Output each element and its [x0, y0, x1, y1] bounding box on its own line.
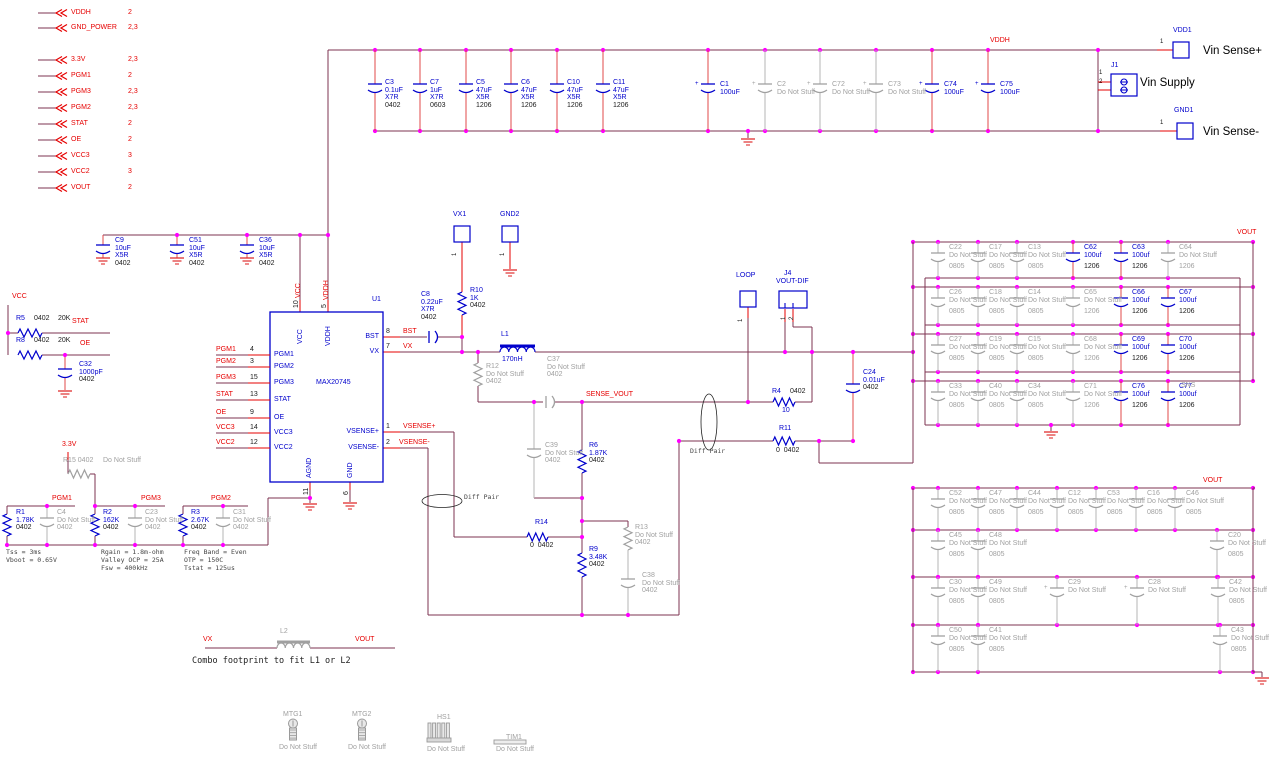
- refdes-C67: C67: [1179, 289, 1192, 297]
- refdes-C65: C65: [1084, 289, 1097, 297]
- size-C14: 0805: [1028, 308, 1044, 316]
- refdes-TIM1: TIM1: [506, 734, 522, 742]
- value-C5: 1206: [476, 102, 492, 110]
- refdes-LOOP: LOOP: [736, 272, 755, 280]
- part-label: 0402: [233, 524, 249, 532]
- refdes-C14: C14: [1028, 289, 1041, 297]
- value-C6: 1206: [521, 102, 537, 110]
- value-C22: Do Not Stuff: [949, 252, 987, 260]
- size-C41: 0805: [989, 646, 1005, 654]
- refdes-J1: J1: [1111, 62, 1118, 70]
- size-C33: 0805: [949, 402, 965, 410]
- value-C7: 1uF: [430, 87, 442, 95]
- value-C29: Do Not Stuff: [1068, 587, 1106, 595]
- net-label-PGM1: PGM1: [52, 495, 72, 503]
- schematic-page: ++++++++ VDDH2GND_POWER2,33.3V2,3PGM12PG…: [0, 0, 1283, 764]
- refdes-C12: C12: [1068, 490, 1081, 498]
- value-L1: 170nH: [502, 356, 523, 364]
- value-C10: 1206: [567, 102, 583, 110]
- part-label: 162K: [103, 517, 119, 525]
- value-C77: 100uf: [1179, 391, 1197, 399]
- part-label: 0402: [589, 457, 605, 465]
- refdes-C47: C47: [989, 490, 1002, 498]
- pin-number: 1: [1160, 39, 1163, 47]
- refdes-C49: C49: [989, 579, 1002, 587]
- size-C17: 0805: [989, 263, 1005, 271]
- pin-number: 5: [321, 304, 329, 308]
- value-C16: Do Not Stuff: [1147, 498, 1185, 506]
- value-C47: Do Not Stuff: [989, 498, 1027, 506]
- value-C40: Do Not Stuff: [989, 391, 1027, 399]
- part-label: 2.67K: [191, 517, 209, 525]
- size-C71: 1206: [1084, 402, 1100, 410]
- refdes-R15: R15 0402: [63, 457, 93, 465]
- pin-number: 1: [452, 253, 460, 256]
- refdes-C29: C29: [1068, 579, 1081, 587]
- size-C65: 1206: [1084, 308, 1100, 316]
- part-label: C39: [545, 442, 558, 450]
- net-flag-pages: 2,3: [128, 24, 138, 32]
- value-C6: X5R: [521, 94, 535, 102]
- part-label: 0402: [79, 376, 95, 384]
- refdes-C9: C9: [115, 237, 124, 245]
- pin-number: 10: [293, 300, 301, 308]
- net-flag-VOUT: VOUT: [71, 184, 90, 192]
- size-C18: 0805: [989, 308, 1005, 316]
- part-number-MAX20745: MAX20745: [316, 379, 351, 387]
- value-C9: X5R: [115, 252, 129, 260]
- size-R8: 0402: [34, 337, 50, 345]
- net-flag-pages: 2: [128, 72, 132, 80]
- value-C1: 100uF: [720, 89, 740, 97]
- refdes-J4: J4: [784, 270, 791, 278]
- refdes-C70: C70: [1179, 336, 1192, 344]
- part-label: R2: [103, 509, 112, 517]
- value-C7: X7R: [430, 94, 444, 102]
- value-C45: Do Not Stuff: [949, 540, 987, 548]
- value-C44: Do Not Stuff: [1028, 498, 1066, 506]
- value-C67: 100uf: [1179, 297, 1197, 305]
- note-text: Vboot = 0.65V: [6, 557, 57, 565]
- part-label: R10: [470, 287, 483, 295]
- net-label-VCC: VCC: [12, 293, 27, 301]
- part-label: 0402: [486, 378, 502, 386]
- refdes-C69: C69: [1132, 336, 1145, 344]
- value-C46: Do Not Stuff: [1186, 498, 1224, 506]
- annotation-combo-footprint: Combo footprint to fit L1 or L2: [192, 658, 351, 666]
- refdes-C53: C53: [1107, 490, 1120, 498]
- value-C49: Do Not Stuff: [989, 587, 1027, 595]
- refdes-C62: C62: [1084, 244, 1097, 252]
- size-C62: 1206: [1084, 263, 1100, 271]
- value-C36: 10uF: [259, 245, 275, 253]
- part-label: Do Not Stuff: [233, 517, 271, 525]
- net-flag-pages: 3: [128, 152, 132, 160]
- note-MTG2: Do Not Stuff: [348, 744, 386, 752]
- net-label-PGM2: PGM2: [216, 358, 236, 366]
- pin-name-OE: OE: [274, 414, 284, 422]
- net-label-VSENSE-: VSENSE-: [399, 439, 430, 447]
- refdes-C34: C34: [1028, 383, 1041, 391]
- part-label: 0402: [16, 524, 32, 532]
- value-C42: Do Not Stuff: [1229, 587, 1267, 595]
- pin-number: 8: [386, 328, 390, 336]
- pin-name-AGND: AGND: [306, 458, 314, 478]
- value-R4: 10: [782, 407, 790, 415]
- value-C51: X5R: [189, 252, 203, 260]
- schematic-labels: VDDH2GND_POWER2,33.3V2,3PGM12PGM32,3PGM2…: [0, 0, 1283, 764]
- part-label: C24: [863, 369, 876, 377]
- net-flag-pages: 2,3: [128, 104, 138, 112]
- value-C11: X5R: [613, 94, 627, 102]
- refdes-C75: C75: [1000, 81, 1013, 89]
- refdes-GND2: GND2: [500, 211, 519, 219]
- value-C74: 100uF: [944, 89, 964, 97]
- pin-name-VCC: VCC: [297, 329, 305, 344]
- net-label-VOUT: VOUT: [355, 636, 374, 644]
- refdes-C36: C36: [259, 237, 272, 245]
- pin-number: 1: [386, 423, 390, 431]
- part-label: R1: [16, 509, 25, 517]
- refdes-U1: U1: [372, 296, 381, 304]
- refdes-C2: C2: [777, 81, 786, 89]
- refdes-C7: C7: [430, 79, 439, 87]
- net-label-VCC2: VCC2: [216, 439, 235, 447]
- refdes-C64: C64: [1179, 244, 1192, 252]
- refdes-C17: C17: [989, 244, 1002, 252]
- value-C64: Do Not Stuff: [1179, 252, 1217, 260]
- value-C15: Do Not Stuff: [1028, 344, 1066, 352]
- value-C5: X5R: [476, 94, 490, 102]
- size-C44: 0805: [1028, 509, 1044, 517]
- net-flag-pages: 2: [128, 184, 132, 192]
- size-C77: 1206: [1179, 402, 1195, 410]
- net-flag-VCC3: VCC3: [71, 152, 90, 160]
- part-label: 0.01uF: [863, 377, 885, 385]
- part-label: Do Not Stuff: [545, 450, 583, 458]
- net-label-SNS: SNS: [1181, 382, 1195, 390]
- net-label-VX: VX: [203, 636, 212, 644]
- net-label-PGM1: PGM1: [216, 346, 236, 354]
- pin-name-VSENSE+: VSENSE+: [337, 428, 379, 436]
- pin-name-VX: VX: [337, 348, 379, 356]
- label-vin-supply: Vin Supply: [1140, 80, 1195, 88]
- part-label: 0402: [589, 561, 605, 569]
- refdes-C44: C44: [1028, 490, 1041, 498]
- part-label: 1K: [470, 295, 479, 303]
- value-C17: Do Not Stuff: [989, 252, 1027, 260]
- size-C53: 0805: [1107, 509, 1123, 517]
- part-label: C23: [145, 509, 158, 517]
- value-C51: 0402: [189, 260, 205, 268]
- part-label: R6: [589, 442, 598, 450]
- value-C65: Do Not Stuff: [1084, 297, 1122, 305]
- part-label: 0402: [421, 314, 437, 322]
- refdes-L2: L2: [280, 628, 288, 636]
- refdes-C13: C13: [1028, 244, 1041, 252]
- size-C15: 0805: [1028, 355, 1044, 363]
- pin-name-VCC3: VCC3: [274, 429, 293, 437]
- value-R5: 20K: [58, 315, 70, 323]
- value-C43: Do Not Stuff: [1231, 635, 1269, 643]
- note-R15: Do Not Stuff: [103, 457, 141, 465]
- pin-number: 11: [303, 488, 311, 495]
- net-flag-pages: 2,3: [128, 88, 138, 96]
- refdes-C43: C43: [1231, 627, 1244, 635]
- value-C36: 0402: [259, 260, 275, 268]
- refdes-MTG2: MTG2: [352, 711, 371, 719]
- label-vin-sense-minus: Vin Sense-: [1203, 129, 1259, 137]
- value-C68: Do Not Stuff: [1084, 344, 1122, 352]
- value-C3: X7R: [385, 94, 399, 102]
- pin-name-VDDH: VDDH: [325, 326, 333, 346]
- pin-number: 1: [781, 317, 789, 320]
- net-label-VDDH: VDDH: [990, 37, 1010, 45]
- net-label-PGM3: PGM3: [141, 495, 161, 503]
- pin-number: 14: [250, 424, 258, 432]
- refdes-C19: C19: [989, 336, 1002, 344]
- size-C64: 1206: [1179, 263, 1195, 271]
- part-label: C4: [57, 509, 66, 517]
- value-C6: 47uF: [521, 87, 537, 95]
- pin-number: 9: [250, 409, 254, 417]
- refdes-C66: C66: [1132, 289, 1145, 297]
- pin-number: 2: [1099, 79, 1102, 87]
- value-C20: Do Not Stuff: [1228, 540, 1266, 548]
- refdes-C1: C1: [720, 81, 729, 89]
- refdes-C15: C15: [1028, 336, 1041, 344]
- value-C11: 47uF: [613, 87, 629, 95]
- part-label: 0402: [470, 302, 486, 310]
- value-C9: 10uF: [115, 245, 131, 253]
- refdes-GND1: GND1: [1174, 107, 1193, 115]
- annotation-diff-pair: Diff Pair: [690, 448, 725, 456]
- refdes-C45: C45: [949, 532, 962, 540]
- size-C27: 0805: [949, 355, 965, 363]
- refdes-C46: C46: [1186, 490, 1199, 498]
- net-label-PGM3: PGM3: [216, 374, 236, 382]
- size-C42: 0805: [1229, 598, 1245, 606]
- size-C20: 0805: [1228, 551, 1244, 559]
- part-label: R12: [486, 363, 499, 371]
- net-flag-pages: 2: [128, 120, 132, 128]
- size-C63: 1206: [1132, 263, 1148, 271]
- net-label-STAT: STAT: [216, 391, 233, 399]
- value-C71: Do Not Stuff: [1084, 391, 1122, 399]
- refdes-C26: C26: [949, 289, 962, 297]
- value-C41: Do Not Stuff: [989, 635, 1027, 643]
- refdes-C27: C27: [949, 336, 962, 344]
- part-label: X7R: [421, 306, 435, 314]
- refdes-C50: C50: [949, 627, 962, 635]
- net-flag-PGM2: PGM2: [71, 104, 91, 112]
- size-C22: 0805: [949, 263, 965, 271]
- refdes-C68: C68: [1084, 336, 1097, 344]
- size-C30: 0805: [949, 598, 965, 606]
- part-label: 1.87K: [589, 450, 607, 458]
- value-C72: Do Not Stuff: [832, 89, 870, 97]
- value-C70: 100uf: [1179, 344, 1197, 352]
- value-C62: 100uf: [1084, 252, 1102, 260]
- value-C3: 0402: [385, 102, 401, 110]
- net-flag-PGM1: PGM1: [71, 72, 91, 80]
- value-C50: Do Not Stuff: [949, 635, 987, 643]
- note-text: Fsw = 400kHz: [101, 565, 148, 573]
- refdes-C30: C30: [949, 579, 962, 587]
- net-flag-STAT: STAT: [71, 120, 88, 128]
- size-C47: 0805: [989, 509, 1005, 517]
- pin-name-GND: GND: [347, 462, 355, 478]
- refdes-R11: R11: [779, 425, 791, 433]
- size-C13: 0805: [1028, 263, 1044, 271]
- value-C19: Do Not Stuff: [989, 344, 1027, 352]
- refdes-C20: C20: [1228, 532, 1241, 540]
- label-vin-sense-plus: Vin Sense+: [1203, 48, 1262, 56]
- size-C52: 0805: [949, 509, 965, 517]
- refdes-R14: R14: [535, 519, 548, 527]
- part-label: C37: [547, 356, 560, 364]
- net-flag-pages: 2: [128, 9, 132, 17]
- part-label: 0402: [145, 524, 161, 532]
- net-flag-PGM3: PGM3: [71, 88, 91, 96]
- net-label-VCC: VCC: [295, 283, 303, 298]
- size-C40: 0805: [989, 402, 1005, 410]
- part-label: 0402: [545, 457, 561, 465]
- value-C73: Do Not Stuff: [888, 89, 926, 97]
- value-C66: 100uf: [1132, 297, 1150, 305]
- value-C10: X5R: [567, 94, 581, 102]
- size-C48: 0805: [989, 551, 1005, 559]
- refdes-C6: C6: [521, 79, 530, 87]
- value-C5: 47uF: [476, 87, 492, 95]
- size-C19: 0805: [989, 355, 1005, 363]
- pin-name-VSENSE-: VSENSE-: [337, 444, 379, 452]
- net-flag-pages: 2,3: [128, 56, 138, 64]
- pin-number: 7: [386, 343, 390, 351]
- refdes-R4: R4: [772, 388, 781, 396]
- part-label: Do Not Stuff: [57, 517, 95, 525]
- part-label: 1000pF: [79, 369, 103, 377]
- refdes-C5: C5: [476, 79, 485, 87]
- refdes-L1: L1: [501, 331, 509, 339]
- refdes-C22: C22: [949, 244, 962, 252]
- net-flag-VDDH: VDDH: [71, 9, 91, 17]
- part-label: 0402: [191, 524, 207, 532]
- value-C14: Do Not Stuff: [1028, 297, 1066, 305]
- part-label: 1.78K: [16, 517, 34, 525]
- pin-number: 12: [250, 439, 258, 447]
- size-C34: 0805: [1028, 402, 1044, 410]
- value-C10: 47uF: [567, 87, 583, 95]
- refdes-C51: C51: [189, 237, 202, 245]
- part-label: Do Not Stuff: [486, 371, 524, 379]
- value-C27: Do Not Stuff: [949, 344, 987, 352]
- size-C70: 1206: [1179, 355, 1195, 363]
- size-C49: 0805: [989, 598, 1005, 606]
- pin-name-BST: BST: [337, 333, 379, 341]
- part-label: R3: [191, 509, 200, 517]
- value-C53: Do Not Stuff: [1107, 498, 1145, 506]
- size-C46: 0805: [1186, 509, 1202, 517]
- refdes-C63: C63: [1132, 244, 1145, 252]
- value-R14: 0 0402: [530, 542, 553, 550]
- value-C63: 100uf: [1132, 252, 1150, 260]
- size-C43: 0805: [1231, 646, 1247, 654]
- part-label: Do Not Stuff: [635, 532, 673, 540]
- pin-name-STAT: STAT: [274, 396, 291, 404]
- pin-number: 13: [250, 391, 258, 399]
- value-C13: Do Not Stuff: [1028, 252, 1066, 260]
- note-HS1: Do Not Stuff: [427, 746, 465, 754]
- pin-number: 6: [343, 491, 351, 495]
- value-R11: 0 0402: [776, 447, 799, 455]
- value-C7: 0603: [430, 102, 446, 110]
- note-TIM1: Do Not Stuff: [496, 746, 534, 754]
- value-C26: Do Not Stuff: [949, 297, 987, 305]
- pin-name-PGM2: PGM2: [274, 363, 294, 371]
- pin-number: 3: [250, 358, 254, 366]
- size-C76: 1206: [1132, 402, 1148, 410]
- part-label: 0402: [547, 371, 563, 379]
- size-C26: 0805: [949, 308, 965, 316]
- note-text: Tstat = 125us: [184, 565, 235, 573]
- net-label-VCC3: VCC3: [216, 424, 235, 432]
- net-label-STAT: STAT: [72, 318, 89, 326]
- net-label-VX: VX: [403, 343, 412, 351]
- value-C2: Do Not Stuff: [777, 89, 815, 97]
- pin-name-PGM3: PGM3: [274, 379, 294, 387]
- size-C12: 0805: [1068, 509, 1084, 517]
- refdes-VX1: VX1: [453, 211, 466, 219]
- refdes-C16: C16: [1147, 490, 1160, 498]
- part-label: R9: [589, 546, 598, 554]
- refdes-C71: C71: [1084, 383, 1097, 391]
- net-label-VOUT: VOUT: [1203, 477, 1222, 485]
- part-label: C31: [233, 509, 246, 517]
- refdes-VDD1: VDD1: [1173, 27, 1192, 35]
- refdes-C52: C52: [949, 490, 962, 498]
- size-C68: 1206: [1084, 355, 1100, 363]
- note-MTG1: Do Not Stuff: [279, 744, 317, 752]
- net-label-BST: BST: [403, 328, 417, 336]
- part-label: R13: [635, 524, 648, 532]
- refdes-C74: C74: [944, 81, 957, 89]
- refdes-C11: C11: [613, 79, 625, 87]
- size-C66: 1206: [1132, 308, 1148, 316]
- size-R5: 0402: [34, 315, 50, 323]
- part-label: Do Not Stuff: [547, 364, 585, 372]
- refdes-C3: C3: [385, 79, 394, 87]
- pin-number: 4: [250, 346, 254, 354]
- size-C16: 0805: [1147, 509, 1163, 517]
- pin-name-VCC2: VCC2: [274, 444, 293, 452]
- net-flag-OE: OE: [71, 136, 81, 144]
- refdes-C42: C42: [1229, 579, 1242, 587]
- size-C67: 1206: [1179, 308, 1195, 316]
- net-flag-pages: 3: [128, 168, 132, 176]
- refdes-C28: C28: [1148, 579, 1161, 587]
- net-label-OE: OE: [216, 409, 226, 417]
- part-label: C8: [421, 291, 430, 299]
- net-flag-VCC2: VCC2: [71, 168, 90, 176]
- pin-number: 1: [738, 319, 746, 322]
- value-R8: 20K: [58, 337, 70, 345]
- net-label-VOUT-DIF: VOUT-DIF: [776, 278, 809, 286]
- annotation-diff-pair: Diff Pair: [464, 494, 499, 502]
- net-flag-3.3V: 3.3V: [71, 56, 85, 64]
- part-label: 0402: [635, 539, 651, 547]
- refdes-C76: C76: [1132, 383, 1145, 391]
